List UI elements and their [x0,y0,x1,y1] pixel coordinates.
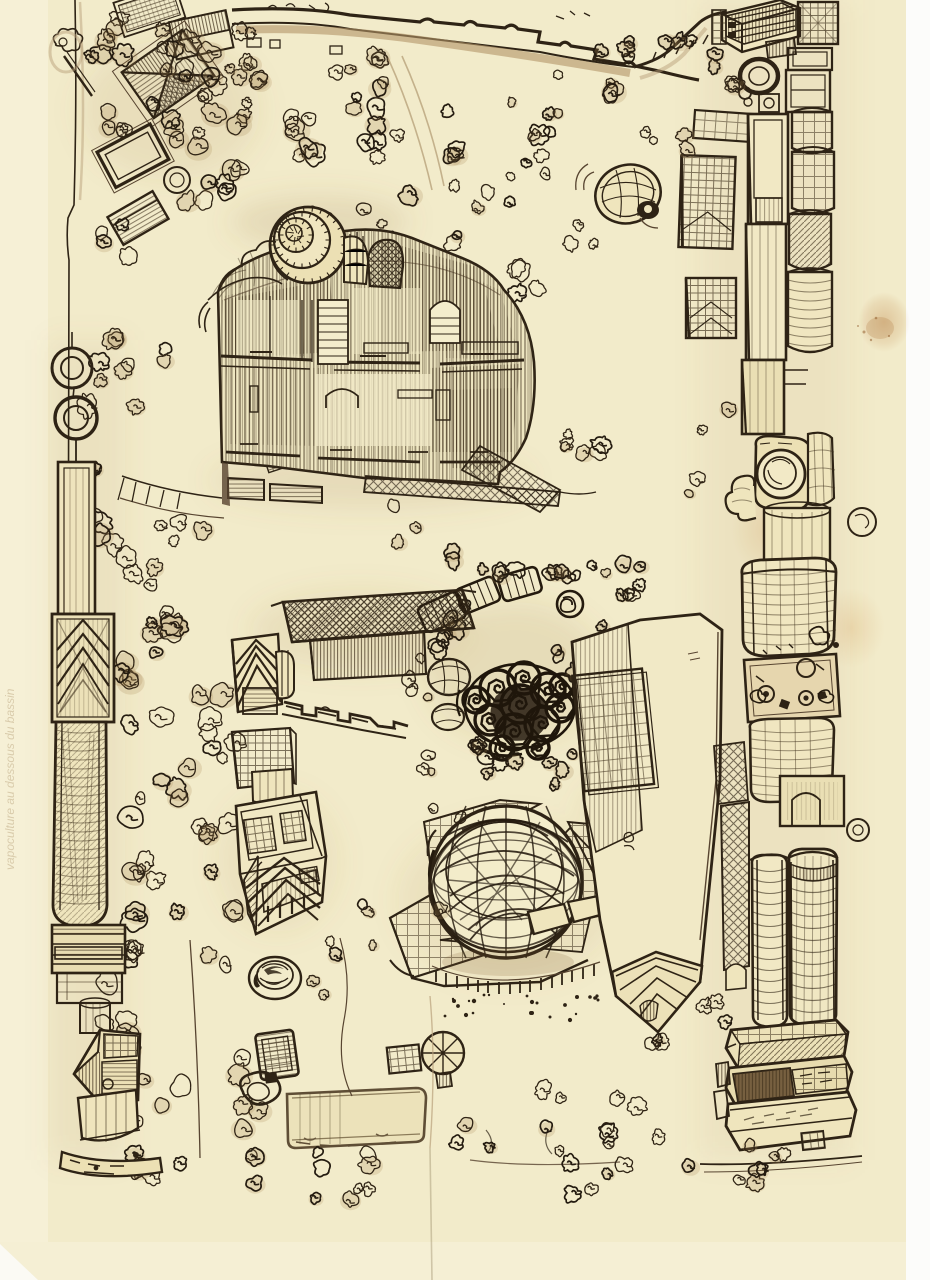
svg-text:vapoculture au dessous du ba: vapoculture au dessous du bassin [3,688,17,870]
